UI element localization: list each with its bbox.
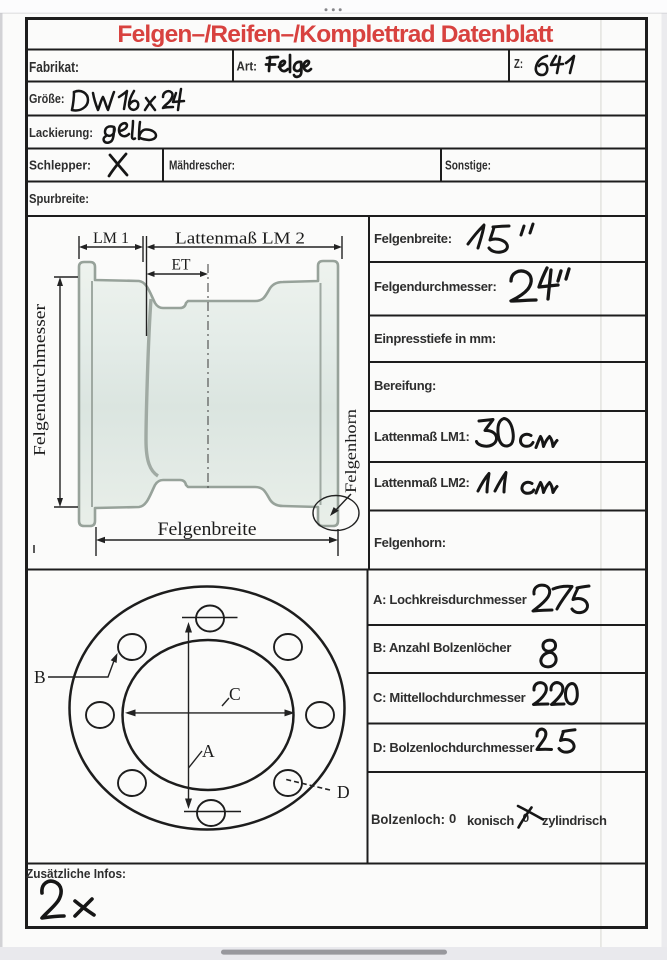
svg-text:Größe:: Größe: <box>29 92 65 106</box>
svg-text:Lackierung:: Lackierung: <box>29 126 93 140</box>
svg-text:Einpresstiefe in mm:: Einpresstiefe in mm: <box>374 331 496 346</box>
svg-text:Felgendurchmesser: Felgendurchmesser <box>30 303 49 456</box>
svg-text:Bolzenloch:: Bolzenloch: <box>371 812 445 827</box>
svg-text:Fabrikat:: Fabrikat: <box>29 59 79 76</box>
svg-text:B: B <box>34 667 46 687</box>
svg-text:Felgenbreite:: Felgenbreite: <box>374 231 452 246</box>
svg-text:Zusätzliche Infos:: Zusätzliche Infos: <box>26 867 126 881</box>
svg-text:Z:: Z: <box>514 57 523 71</box>
svg-text:Mähdrescher:: Mähdrescher: <box>169 158 235 173</box>
svg-text:Sonstige:: Sonstige: <box>445 158 491 173</box>
svg-text:Art:: Art: <box>237 60 258 74</box>
svg-text:A: Lochkreisdurchmesser: A: Lochkreisdurchmesser <box>373 592 527 607</box>
svg-text:A: A <box>202 741 215 761</box>
svg-text:Felgendurchmesser:: Felgendurchmesser: <box>374 279 496 294</box>
svg-text:Felgen–/Reifen–/Komplettrad Da: Felgen–/Reifen–/Komplettrad Datenblatt <box>117 21 553 48</box>
svg-text:0: 0 <box>449 811 456 826</box>
svg-text:zylindrisch: zylindrisch <box>542 813 607 828</box>
svg-text:C: C <box>229 684 241 704</box>
svg-text:ET: ET <box>172 257 191 274</box>
svg-text:C: Mittellochdurchmesser: C: Mittellochdurchmesser <box>373 690 526 705</box>
svg-text:Lattenmaß LM 2: Lattenmaß LM 2 <box>175 229 305 248</box>
svg-text:Felgenhorn: Felgenhorn <box>343 409 360 493</box>
svg-text:D: D <box>337 782 350 802</box>
svg-text:D: Bolzenlochdurchmesser: D: Bolzenlochdurchmesser <box>373 740 534 755</box>
svg-text:Bereifung:: Bereifung: <box>374 378 436 393</box>
svg-text:Schlepper:: Schlepper: <box>29 158 91 173</box>
svg-text:Felgenhorn:: Felgenhorn: <box>374 535 446 550</box>
svg-text:Spurbreite:: Spurbreite: <box>29 191 89 206</box>
svg-text:Felgenbreite: Felgenbreite <box>158 519 257 540</box>
svg-text:LM 1: LM 1 <box>93 230 129 247</box>
svg-text:Lattenmaß LM2:: Lattenmaß LM2: <box>374 475 469 490</box>
svg-text:Lattenmaß LM1:: Lattenmaß LM1: <box>374 429 469 444</box>
svg-text:konisch: konisch <box>467 813 514 828</box>
svg-text:B: Anzahl Bolzenlöcher: B: Anzahl Bolzenlöcher <box>373 640 511 655</box>
